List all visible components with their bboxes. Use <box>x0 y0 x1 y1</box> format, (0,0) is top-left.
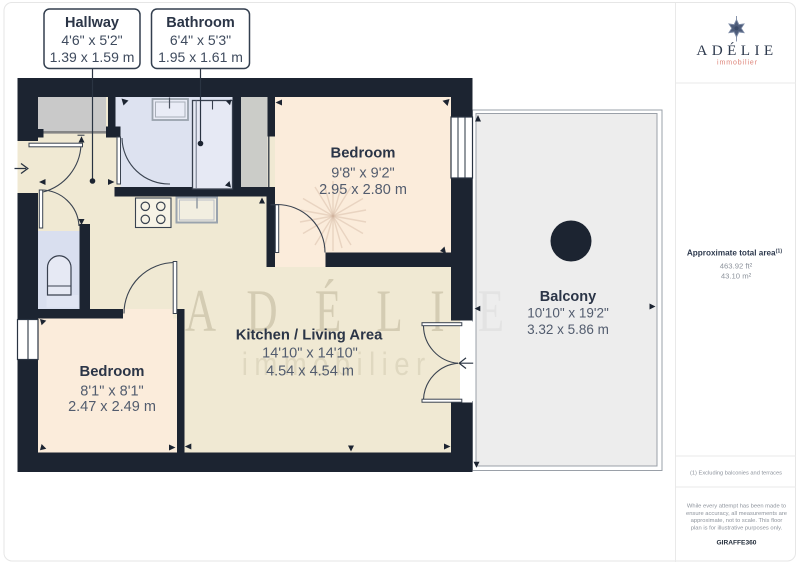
svg-text:1.95 x 1.61 m: 1.95 x 1.61 m <box>158 49 243 65</box>
svg-text:Approximate total area(1): Approximate total area(1) <box>687 249 782 258</box>
svg-text:approximate, not to scale. Thi: approximate, not to scale. This floor <box>691 518 783 524</box>
svg-text:14'10" x 14'10": 14'10" x 14'10" <box>262 346 358 362</box>
svg-text:GIRAFFE360: GIRAFFE360 <box>717 540 757 547</box>
svg-text:43.10 m²: 43.10 m² <box>721 271 752 280</box>
svg-text:463.92 ft²: 463.92 ft² <box>720 261 753 270</box>
svg-text:8'1" x 8'1": 8'1" x 8'1" <box>80 384 143 400</box>
svg-text:4.54 x 4.54 m: 4.54 x 4.54 m <box>266 364 354 380</box>
svg-text:(1) Excluding balconies and te: (1) Excluding balconies and terraces <box>690 471 782 477</box>
svg-text:9'8" x 9'2": 9'8" x 9'2" <box>331 166 394 182</box>
svg-text:A: A <box>185 278 216 345</box>
svg-text:Balcony: Balcony <box>540 289 596 305</box>
svg-text:Bathroom: Bathroom <box>166 15 234 31</box>
svg-text:3.32 x 5.86 m: 3.32 x 5.86 m <box>527 322 609 337</box>
svg-text:2.95 x 2.80 m: 2.95 x 2.80 m <box>319 182 407 198</box>
svg-text:Hallway: Hallway <box>65 15 119 31</box>
svg-text:1.39 x 1.59 m: 1.39 x 1.59 m <box>50 49 135 65</box>
svg-text:4'6" x 5'2": 4'6" x 5'2" <box>61 32 122 48</box>
svg-text:6'4" x 5'3": 6'4" x 5'3" <box>170 32 231 48</box>
svg-text:2.47 x 2.49 m: 2.47 x 2.49 m <box>68 399 156 415</box>
svg-text:immobilier: immobilier <box>717 60 758 67</box>
svg-text:E: E <box>478 278 504 345</box>
svg-text:While every attempt has been m: While every attempt has been made to <box>687 504 786 510</box>
svg-text:plan is for illustrative purpo: plan is for illustrative purposes only. <box>691 525 783 531</box>
svg-text:ADÉLIE: ADÉLIE <box>696 42 777 59</box>
svg-text:Kitchen / Living Area: Kitchen / Living Area <box>236 328 383 344</box>
svg-text:Bedroom: Bedroom <box>331 146 396 162</box>
svg-text:10'10" x 19'2": 10'10" x 19'2" <box>527 306 609 321</box>
svg-text:Bedroom: Bedroom <box>80 364 145 380</box>
svg-text:I: I <box>430 278 444 345</box>
svg-text:ensure accuracy, all measureme: ensure accuracy, all measurements are <box>686 511 787 517</box>
